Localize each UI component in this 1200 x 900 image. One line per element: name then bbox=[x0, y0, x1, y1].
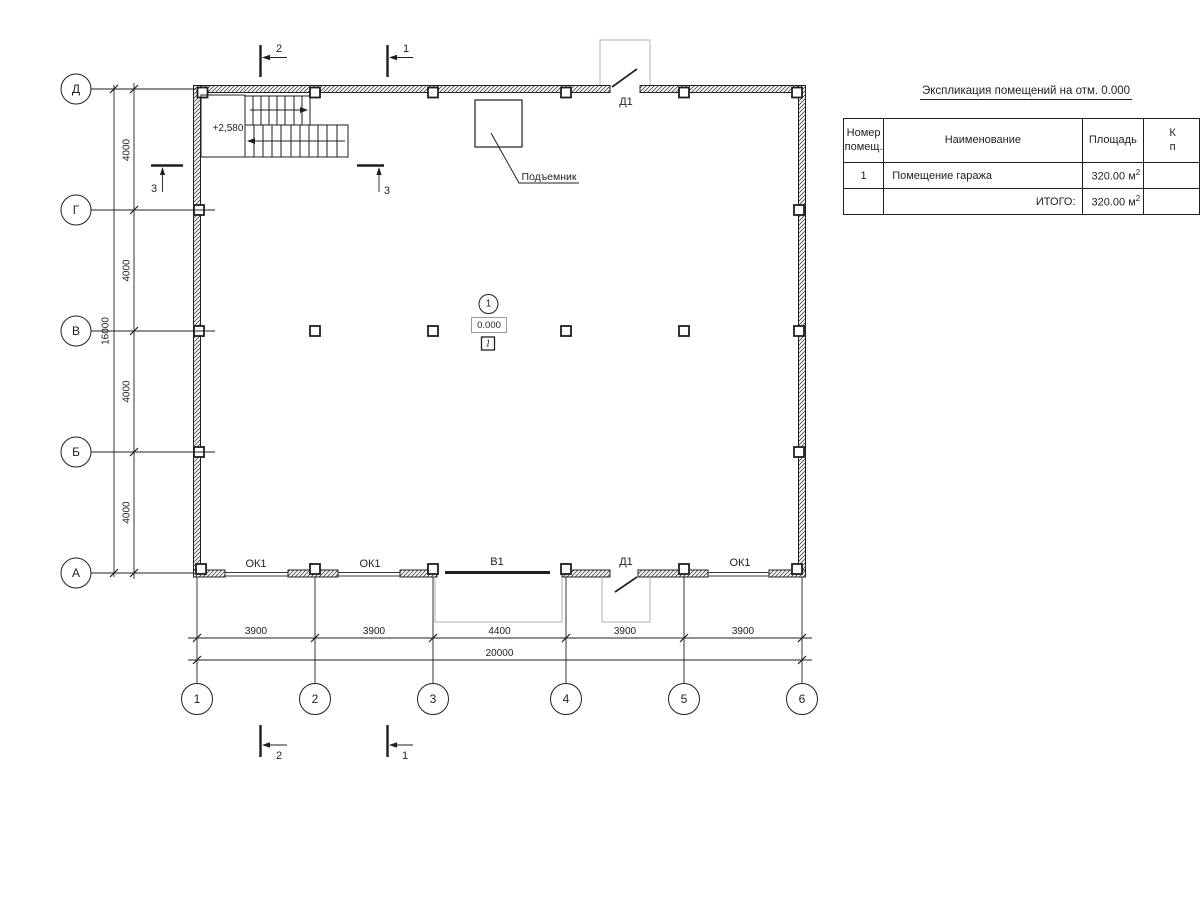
svg-text:4400: 4400 bbox=[488, 626, 511, 637]
window-3-label: ОК1 bbox=[729, 557, 750, 569]
header-name: Наименование bbox=[884, 119, 1082, 163]
cell-room-category bbox=[1144, 163, 1200, 189]
wall-bottom-seg5 bbox=[638, 570, 708, 577]
bottom-dim-labels: 3900 3900 4400 3900 3900 20000 bbox=[245, 626, 755, 659]
window-3-glyph bbox=[708, 573, 769, 577]
header-room-number: Номер помещ. bbox=[844, 119, 884, 163]
svg-text:3900: 3900 bbox=[245, 626, 268, 637]
svg-text:3900: 3900 bbox=[614, 626, 637, 637]
axis-col-label-4: 4 bbox=[563, 692, 570, 706]
stair-elevation-label: +2,580 bbox=[213, 123, 244, 134]
stair-treads-upper bbox=[253, 96, 302, 125]
door-top-label: Д1 bbox=[619, 96, 633, 108]
gate-label: В1 bbox=[490, 556, 503, 568]
svg-text:4000: 4000 bbox=[122, 380, 133, 403]
axis-row-label-g: Г bbox=[73, 203, 80, 217]
axis-row-label-b: Б bbox=[72, 445, 80, 459]
window-1-label: ОК1 bbox=[245, 558, 266, 570]
svg-text:3900: 3900 bbox=[363, 626, 386, 637]
table-title: Экспликация помещений на отм. 0.000 bbox=[920, 85, 1132, 100]
svg-text:4000: 4000 bbox=[122, 138, 133, 161]
section-bottom-1-label: 1 bbox=[402, 750, 408, 762]
elevation-mark-label: 0.000 bbox=[477, 320, 501, 331]
table-header-row: Номер помещ. Наименование Площадь К п bbox=[844, 119, 1200, 163]
header-category: К п bbox=[1144, 119, 1200, 163]
axis-col-label-3: 3 bbox=[430, 692, 437, 706]
explication-table: Номер помещ. Наименование Площадь К п 1 … bbox=[843, 118, 1200, 215]
bottom-axis-bubbles: 1 2 3 4 5 6 bbox=[182, 684, 818, 715]
door-bottom-leaf bbox=[615, 577, 637, 592]
header-area: Площадь bbox=[1082, 119, 1144, 163]
axis-row-label-d: Д bbox=[72, 82, 80, 96]
svg-text:4000: 4000 bbox=[122, 501, 133, 524]
table-row: 1 Помещение гаража 320.00 м2 bbox=[844, 163, 1200, 189]
gate-apron bbox=[435, 577, 562, 622]
lift-label: Подъемник bbox=[522, 171, 577, 183]
window-1-glyph bbox=[225, 573, 288, 577]
cell-total-empty bbox=[844, 189, 884, 215]
cell-total-category bbox=[1144, 189, 1200, 215]
section-bottom-2-label: 2 bbox=[276, 750, 282, 762]
floor-plan-sheet: +2,580 Подъемник 1 0.000 1 Д1 Д1 В1 ОК1 … bbox=[0, 0, 1200, 900]
cell-room-name: Помещение гаража bbox=[884, 163, 1082, 189]
stair-arrow-down-head bbox=[247, 138, 255, 144]
room-marks: 1 0.000 1 bbox=[472, 295, 507, 351]
dim-bottom-total: 20000 bbox=[486, 648, 514, 659]
section-markers: 2 1 2 1 3 3 bbox=[151, 43, 413, 762]
cell-room-number: 1 bbox=[844, 163, 884, 189]
wall-top-right bbox=[640, 86, 806, 93]
axis-row-label-a: А bbox=[72, 566, 80, 580]
svg-text:4000: 4000 bbox=[122, 259, 133, 282]
dim-left-total: 16000 bbox=[101, 317, 112, 345]
section-left-3-label: 3 bbox=[151, 183, 157, 195]
table-total-row: ИТОГО: 320.00 м2 bbox=[844, 189, 1200, 215]
cell-total-label: ИТОГО: bbox=[884, 189, 1082, 215]
cell-room-area: 320.00 м2 bbox=[1082, 163, 1144, 189]
door-top-leaf bbox=[612, 69, 637, 87]
lift-symbol bbox=[475, 100, 522, 147]
lift: Подъемник bbox=[475, 100, 579, 183]
section-top-1-label: 1 bbox=[403, 43, 409, 55]
wall-top-left bbox=[194, 86, 611, 93]
stair-arrow-up-head bbox=[300, 107, 308, 113]
cell-total-area: 320.00 м2 bbox=[1082, 189, 1144, 215]
axis-col-label-5: 5 bbox=[681, 692, 688, 706]
axis-row-label-v: В bbox=[72, 324, 80, 338]
section-top-2-label: 2 bbox=[276, 43, 282, 55]
svg-text:3900: 3900 bbox=[732, 626, 755, 637]
axis-mark-label: 1 bbox=[486, 299, 492, 310]
room-number-label: 1 bbox=[485, 338, 490, 349]
window-2-glyph bbox=[338, 573, 400, 577]
section-right-3-label: 3 bbox=[384, 185, 390, 197]
axis-col-label-6: 6 bbox=[799, 692, 806, 706]
window-2-label: ОК1 bbox=[359, 558, 380, 570]
left-axis-bubbles: Д Г В Б А bbox=[61, 74, 91, 588]
doors bbox=[435, 40, 650, 622]
door-bottom-label: Д1 bbox=[619, 556, 633, 568]
axis-col-label-1: 1 bbox=[194, 692, 201, 706]
axis-col-label-2: 2 bbox=[312, 692, 319, 706]
